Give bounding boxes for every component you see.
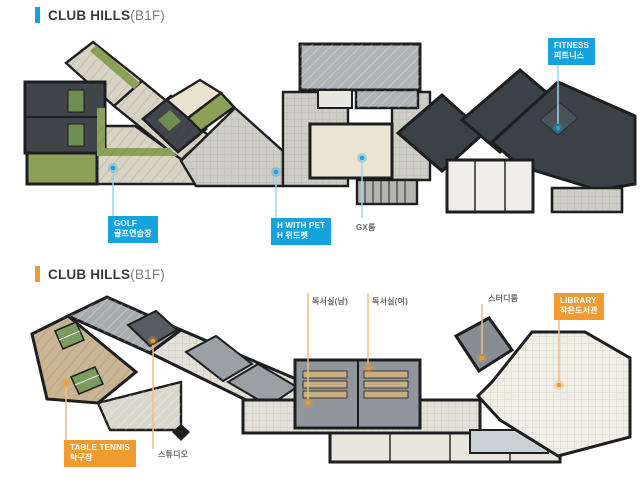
label-table-tennis: TABLE TENNIS 탁구장 <box>64 440 136 467</box>
label-h-with-pet-ko: H 위드펫 <box>277 231 325 241</box>
label-table-tennis-ko: 탁구장 <box>70 453 130 463</box>
label-golf-en: GOLF <box>114 219 152 229</box>
label-library: LIBRARY 작은도서관 <box>554 293 604 320</box>
plan-top <box>25 42 635 212</box>
dot-fitness <box>556 126 561 131</box>
label-library-en: LIBRARY <box>560 296 598 306</box>
label-golf-ko: 골프연습장 <box>114 229 152 239</box>
label-h-with-pet: H WITH PET H 위드펫 <box>271 218 331 245</box>
dot-gx <box>360 156 365 161</box>
label-reading-room-m: 독서실(남) <box>312 296 348 307</box>
label-gx-room: GX룸 <box>356 222 376 233</box>
label-table-tennis-en: TABLE TENNIS <box>70 443 130 453</box>
dot-studio <box>151 339 156 344</box>
label-study-room: 스터디룸 <box>488 293 518 304</box>
label-fitness-ko: 피트니스 <box>554 51 589 61</box>
dot-library <box>557 383 562 388</box>
label-fitness: FITNESS 피트니스 <box>548 38 595 65</box>
dot-reading-m <box>306 401 311 406</box>
dot-h-with-pet <box>274 170 279 175</box>
title-accent-bar-blue <box>35 7 40 23</box>
study-room-zone <box>456 318 512 371</box>
section-title-top-text: CLUB HILLS(B1F) <box>48 8 165 23</box>
label-golf: GOLF 골프연습장 <box>108 216 158 243</box>
label-reading-room-f: 독서실(여) <box>372 296 408 307</box>
plan-bottom <box>32 297 630 462</box>
turf-zone <box>27 153 97 184</box>
dot-golf <box>111 166 116 171</box>
label-library-ko: 작은도서관 <box>560 306 598 316</box>
section-title-bottom: CLUB HILLS(B1F) <box>35 266 165 282</box>
gx-room-zone <box>310 124 392 178</box>
dot-table-tennis <box>64 381 69 386</box>
label-studio: 스튜디오 <box>158 449 188 460</box>
label-h-with-pet-en: H WITH PET <box>277 221 325 231</box>
dot-reading-f <box>366 366 371 371</box>
stairs-top <box>357 180 417 204</box>
section-title-bottom-text: CLUB HILLS(B1F) <box>48 267 165 282</box>
title-accent-bar-orange <box>35 266 40 282</box>
service-rooms <box>447 160 533 212</box>
section-title-top: CLUB HILLS(B1F) <box>35 7 165 23</box>
label-fitness-en: FITNESS <box>554 41 589 51</box>
dot-study <box>480 356 485 361</box>
